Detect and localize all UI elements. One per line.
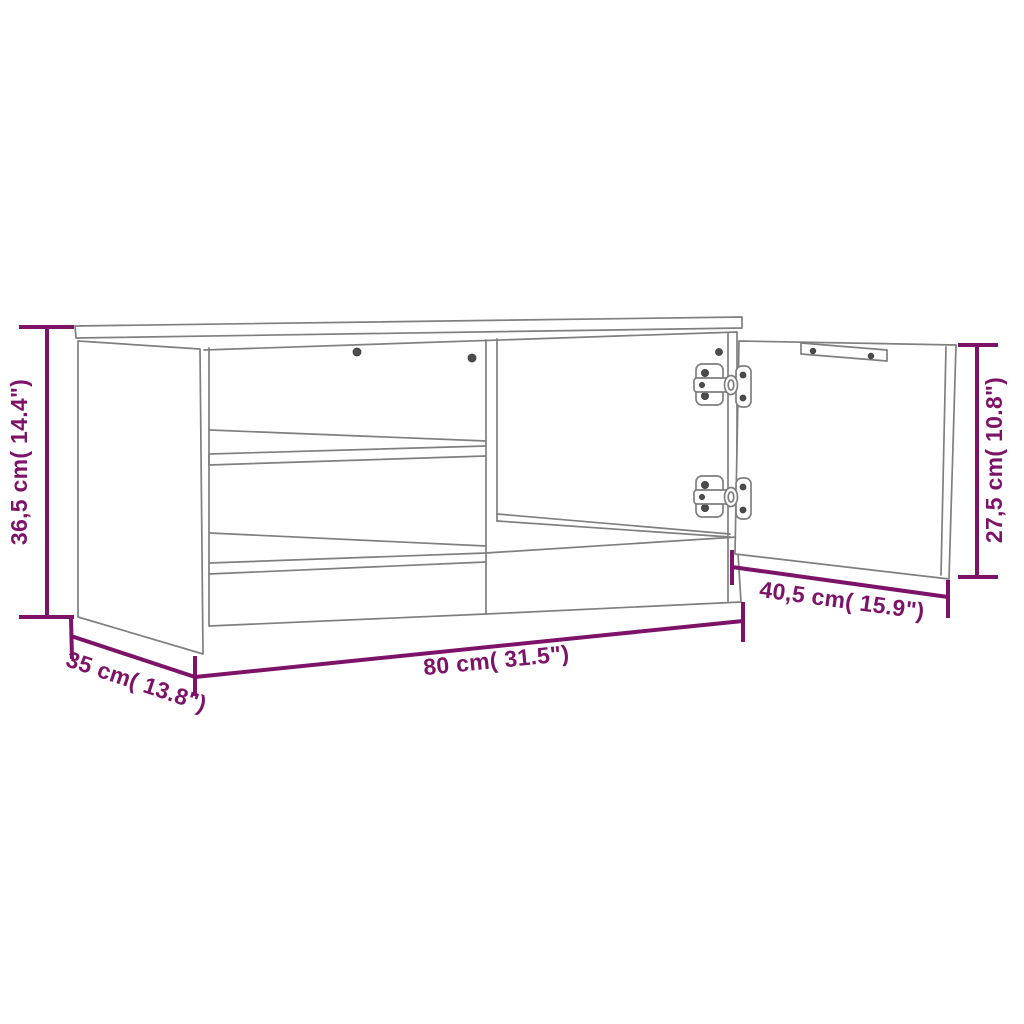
cabinet-bottom-panels — [209, 514, 730, 574]
screw-icon — [353, 348, 361, 356]
screw-icon — [810, 348, 816, 354]
screw-icon — [701, 369, 708, 376]
dimension-label-door-height: 27,5 cm( 10.8") — [981, 377, 1007, 543]
hinge-top — [694, 364, 751, 407]
hinge-bottom — [694, 476, 751, 519]
cabinet-front-rail — [209, 537, 741, 626]
screw-icon — [701, 392, 708, 399]
cabinet-side-panel — [78, 341, 209, 654]
screw-icon — [699, 382, 704, 387]
cabinet-divider — [486, 339, 497, 614]
back-panel-screws — [353, 348, 723, 362]
screw-icon — [740, 372, 746, 378]
screw-icon — [468, 354, 476, 362]
screw-icon — [740, 395, 746, 401]
dimension-depth: 35 cm( 13.8") — [63, 618, 210, 717]
screw-icon — [868, 353, 874, 359]
dimension-diagram: 36,5 cm( 14.4") 35 cm( 13.8") 80 cm( 31.… — [0, 0, 1024, 1024]
cabinet-door — [735, 341, 956, 579]
screw-icon — [716, 349, 723, 356]
dimension-height: 36,5 cm( 14.4") — [6, 327, 74, 617]
dimension-label-height: 36,5 cm( 14.4") — [6, 379, 32, 545]
dimension-width: 80 cm( 31.5") — [195, 602, 743, 696]
cabinet-shelf — [209, 430, 486, 465]
dimension-door-height: 27,5 cm( 10.8") — [958, 345, 1007, 577]
dimension-diagram-svg: 36,5 cm( 14.4") 35 cm( 13.8") 80 cm( 31.… — [0, 0, 1024, 1024]
